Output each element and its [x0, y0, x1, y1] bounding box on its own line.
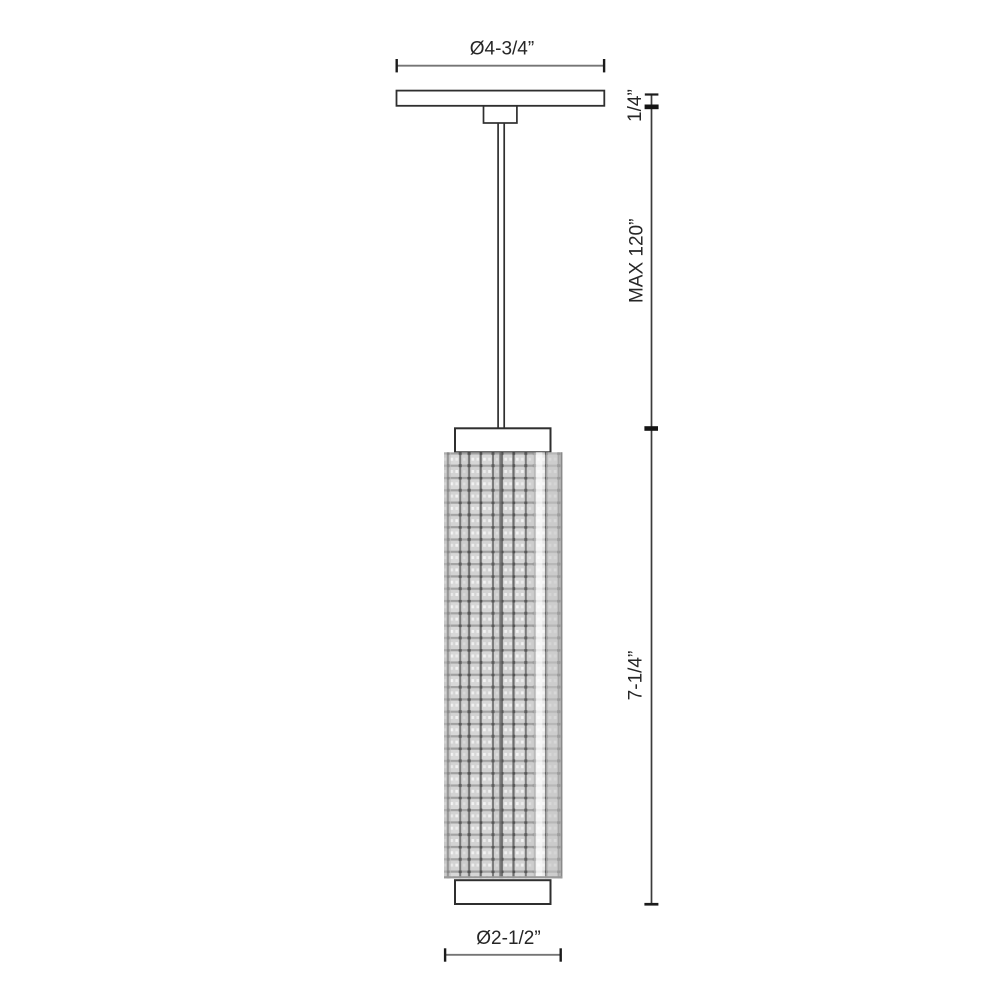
- svg-text:Ø4-3/4”: Ø4-3/4”: [470, 39, 534, 60]
- svg-text:1/4”: 1/4”: [625, 89, 646, 122]
- svg-text:7-1/4”: 7-1/4”: [625, 651, 646, 701]
- svg-text:MAX 120”: MAX 120”: [627, 219, 648, 303]
- svg-text:Ø2-1/2”: Ø2-1/2”: [476, 928, 540, 949]
